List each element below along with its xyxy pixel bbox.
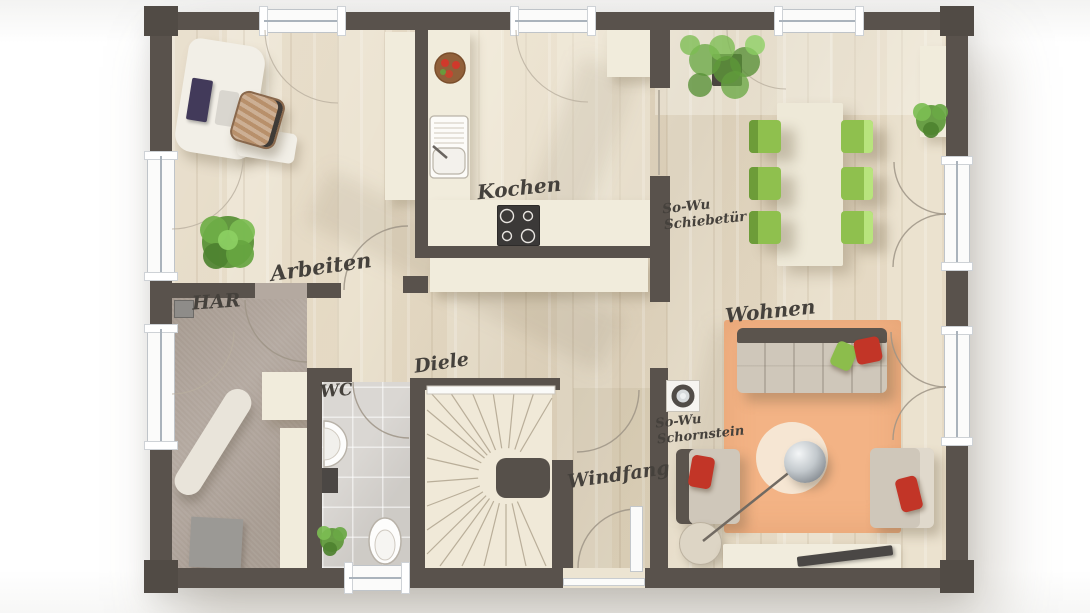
- wall-har-stub: [307, 283, 341, 298]
- dining-chair: [749, 167, 781, 200]
- kitchen-tall-cabinet: [607, 30, 651, 77]
- dining-chair: [841, 120, 873, 153]
- window-left-har: [147, 328, 175, 446]
- entry-door-leaf: [630, 506, 643, 572]
- wc-tile-floor: [322, 382, 410, 568]
- side-table: [679, 522, 722, 565]
- wall-left: [150, 12, 172, 588]
- dining-table: [777, 103, 843, 266]
- wall-dining-mid: [650, 176, 670, 302]
- wall-kitchen-south: [415, 246, 667, 258]
- window-top-kochen: [514, 9, 592, 33]
- wall-stairs-west: [410, 378, 425, 568]
- french-door-wohnen: [944, 330, 970, 442]
- floorplan-canvas: Arbeiten Kochen HAR WC Diele Windfang Wo…: [0, 0, 1090, 613]
- window-top-arbeiten: [263, 9, 342, 33]
- wall-pier: [403, 276, 428, 293]
- window-top-dining: [778, 9, 860, 33]
- arbeiten-tall-cabinet: [385, 32, 415, 200]
- dining-chair: [841, 167, 873, 200]
- wall-corner: [940, 6, 974, 36]
- entry-threshold: [563, 578, 645, 586]
- dining-chair: [841, 211, 873, 244]
- floor-mat: [189, 517, 244, 570]
- kitchen-counter-left: [428, 30, 470, 202]
- wall-stairs-north: [410, 378, 560, 390]
- window-bottom-wc: [348, 565, 406, 591]
- har-carpet-doorpatch: [255, 283, 307, 299]
- french-door-dining: [944, 160, 970, 267]
- wall-bottom: [150, 568, 968, 588]
- diele-sideboard: [430, 258, 648, 292]
- room-label-har: HAR: [191, 289, 241, 314]
- red-pillow: [853, 336, 884, 366]
- stove: [497, 205, 540, 246]
- chimney: [666, 380, 700, 412]
- wall-corner: [940, 560, 974, 593]
- wall-corner: [144, 6, 178, 36]
- har-cabinet: [262, 372, 307, 420]
- sideboard: [920, 46, 948, 137]
- wall-arbeiten-kochen: [415, 30, 428, 258]
- room-label-wc: WC: [319, 380, 353, 402]
- har-tall-cabinet: [280, 428, 307, 568]
- wall-dining-top: [650, 30, 670, 88]
- window-left-arbeiten: [147, 155, 175, 277]
- wall-corner: [144, 560, 178, 593]
- dining-chair: [749, 211, 781, 244]
- stairs-floor: [425, 390, 552, 568]
- wall-right: [946, 12, 968, 588]
- dining-chair: [749, 120, 781, 153]
- lamp-sphere: [784, 441, 826, 483]
